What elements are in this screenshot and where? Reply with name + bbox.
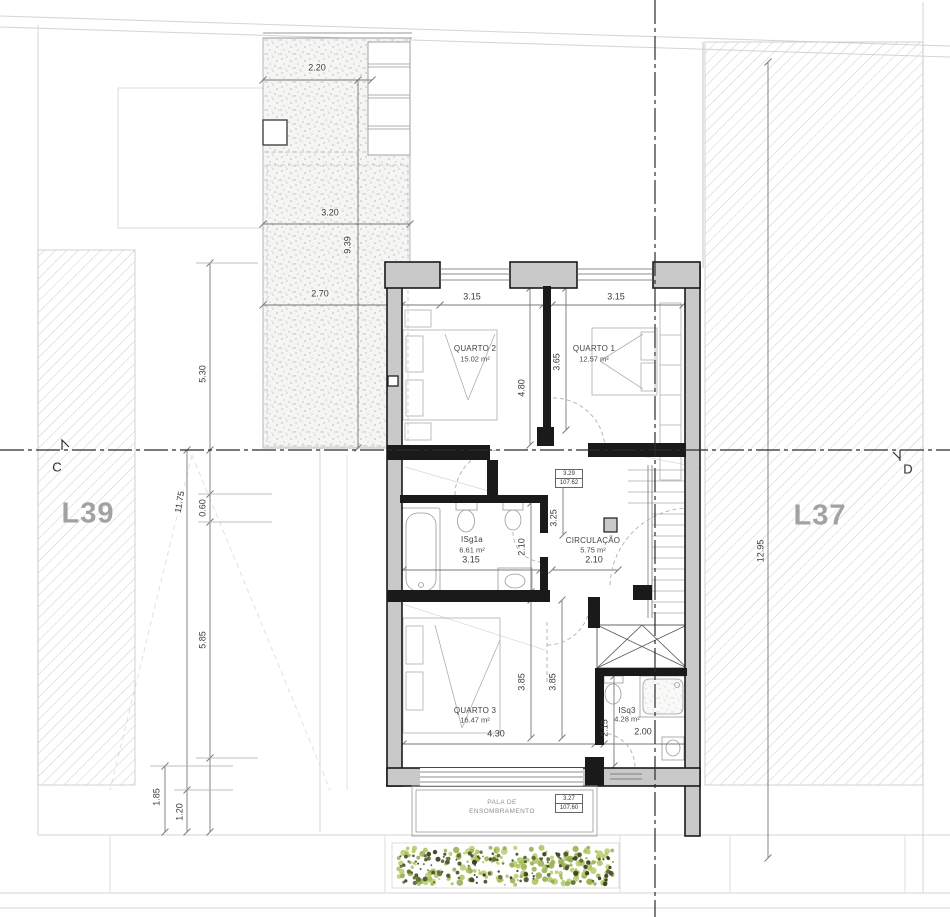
- exterior-walls: [385, 262, 700, 836]
- dim-quarto1-depth: 3.65: [553, 353, 562, 371]
- dim-left-lower: 5.85: [199, 631, 208, 649]
- section-marker-c: C: [52, 461, 61, 474]
- canopy-label-line2: ENSOMBRAMENTO: [469, 809, 535, 816]
- level-elevation-lower: 107.60: [556, 804, 582, 812]
- dim-quarto2-depth: 4.80: [518, 379, 527, 397]
- dim-front-depth: 1.85: [153, 788, 162, 806]
- vegetation: [396, 845, 614, 887]
- dim-quarto3-depth-a: 3.85: [518, 673, 527, 691]
- level-value-upper: 3.29: [556, 470, 582, 479]
- toilet-icon: [456, 502, 477, 510]
- interior-walls: [387, 286, 687, 786]
- dim-quarto3-width: 4.30: [487, 730, 505, 739]
- dim-isq3-width: 2.00: [634, 728, 652, 737]
- room-label-isg1a: ISg1a: [461, 536, 483, 544]
- level-elevation-upper: 107.62: [556, 479, 582, 487]
- plan-linework: [0, 0, 950, 917]
- room-label-quarto2: QUARTO 2: [454, 345, 496, 353]
- lot-label-l37: L37: [794, 502, 847, 531]
- dim-left-upper: 5.30: [199, 365, 208, 383]
- dim-front-offset: 1.20: [176, 803, 185, 821]
- level-marker-upper: 3.29 107.62: [555, 469, 583, 488]
- room-area-isg1a: 6.61 m²: [459, 546, 484, 554]
- dim-left-offset: 0.60: [199, 499, 208, 517]
- room-area-quarto3: 16.47 m²: [460, 716, 490, 724]
- dim-quarto2-width: 3.15: [463, 293, 481, 302]
- stair-column: [604, 518, 617, 532]
- canopy-label-line1: PALA DE: [487, 800, 516, 807]
- room-label-quarto3: QUARTO 3: [454, 707, 496, 715]
- courtyard-planter-box: [263, 120, 287, 145]
- room-area-circulacao: 5.75 m²: [580, 546, 605, 554]
- dim-isg1a-width: 3.15: [462, 556, 480, 565]
- dim-courtyard-mid: 3.20: [319, 209, 341, 218]
- bidet-icon: [503, 502, 523, 510]
- dim-isq3-depth: 2.15: [601, 719, 610, 737]
- dim-isg1a-depth: 2.10: [518, 538, 527, 556]
- floor-plan-canvas: L39 L37 C D QUARTO 2 15.02 m² QUARTO 1 1…: [0, 0, 950, 917]
- dim-courtyard-top: 2.20: [306, 64, 328, 73]
- sink2-icon: [662, 737, 684, 760]
- room-label-quarto1: QUARTO 1: [573, 345, 615, 353]
- lot-l37-hatch: [705, 42, 923, 785]
- room-label-circulacao: CIRCULAÇÃO: [566, 537, 620, 545]
- dim-quarto1-width: 3.15: [607, 293, 625, 302]
- level-value-lower: 3.27: [556, 795, 582, 804]
- dim-courtyard-height: 9.39: [344, 234, 353, 256]
- room-area-isq3: 4.28 m²: [614, 715, 639, 723]
- courtyard-stair: [368, 42, 410, 155]
- dim-quarto3-depth-b: 3.85: [549, 673, 558, 691]
- section-marker-d: D: [903, 463, 912, 476]
- wall-vent-window: [388, 376, 398, 386]
- lot-hatch-regions: [38, 42, 923, 785]
- dim-courtyard-low: 2.70: [309, 290, 331, 299]
- room-area-quarto2: 15.02 m²: [460, 355, 490, 363]
- dim-hall-depth: 3.25: [550, 509, 559, 527]
- room-area-quarto1: 12.57 m²: [579, 355, 609, 363]
- level-marker-lower: 3.27 107.60: [555, 794, 583, 813]
- dim-circulacao-width: 2.10: [585, 556, 603, 565]
- dim-right-total: 12.95: [757, 540, 766, 563]
- staircase: [597, 465, 687, 668]
- lot-label-l39: L39: [62, 500, 115, 529]
